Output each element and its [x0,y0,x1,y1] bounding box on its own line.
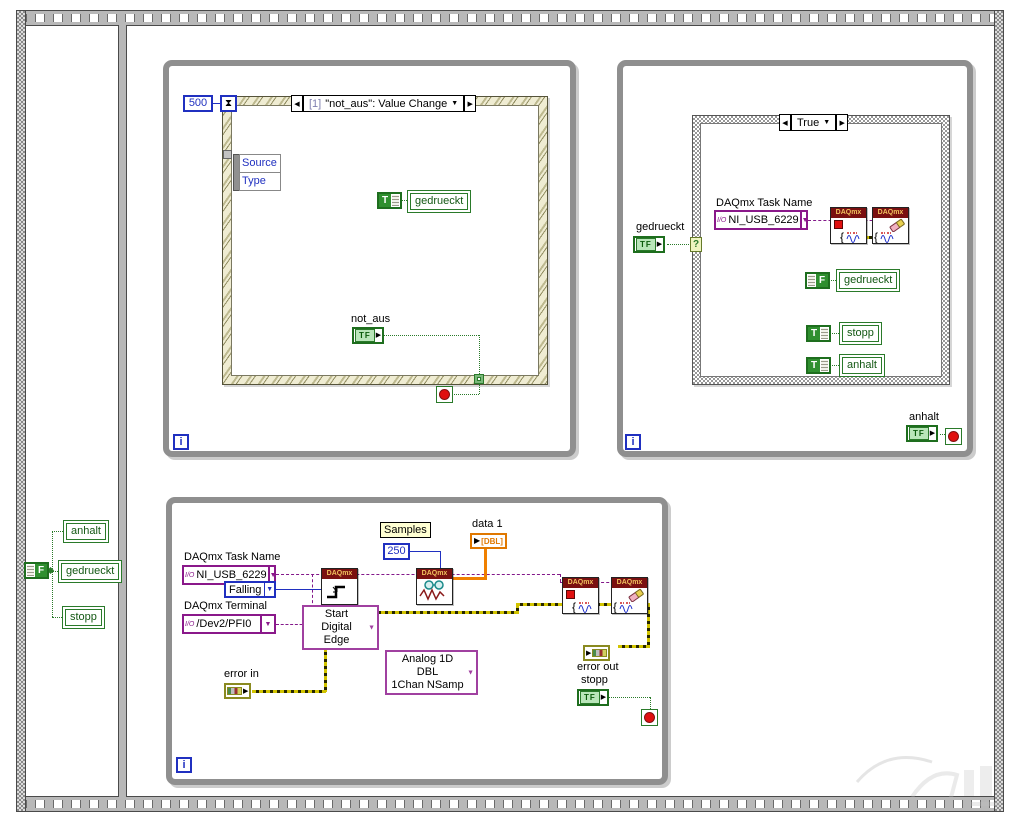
wire-init-stopp [52,617,62,618]
daqmx-read-vi[interactable]: DAQmx [416,568,453,605]
event-case-title: "not_aus": Value Change [325,98,447,110]
sequence-border-top [16,10,1004,26]
wire-notaus-v1 [479,335,480,374]
false-constant-init[interactable]: F [24,562,49,579]
timeout-hourglass-icon[interactable]: ⧗ [220,95,237,112]
daqmx-stop-task-vi-loop3[interactable]: DAQmx { [562,577,599,614]
task-name-constant-loop2[interactable]: I/O NI_USB_6229 ▼ [714,210,808,230]
terminal-arrow-icon: ▶ [243,688,248,695]
true-constant-anhalt[interactable]: T [806,357,831,374]
loop1-stop-terminal[interactable] [436,386,453,403]
io-glyph: I/O [184,572,195,579]
bool-const-value: T [379,194,391,207]
stop-sign-icon [439,389,450,400]
error-out-label: error out [577,661,619,673]
trigger-polymorphic-selector[interactable]: Start Digital Edge ▼ [302,605,379,650]
event-prev-arrow-icon[interactable]: ◀ [291,95,303,112]
event-data-source[interactable]: Source [239,154,281,173]
svg-text:{: { [840,230,844,243]
wire-falling [276,589,322,590]
wire-error3-e [618,645,650,648]
svg-text:{: { [613,600,617,613]
event-tunnel [474,374,484,384]
wire-init [52,531,53,617]
sequence-border-bottom [16,796,1004,812]
local-variable-stopp-loop2[interactable]: stopp [839,322,882,345]
true-constant-stopp[interactable]: T [806,325,831,342]
stopp-terminal[interactable]: TF ▶ [577,689,609,706]
loop2-stop-terminal[interactable] [945,428,962,445]
event-dropdown-icon[interactable]: ▼ [451,100,458,107]
event-case-index: [1] [309,98,321,110]
samples-label: Samples [380,522,431,538]
local-variable-gedrueckt-init[interactable]: gedrueckt [58,560,122,583]
bool-const-glyph [821,328,828,339]
local-variable-stopp-init[interactable]: stopp [62,606,105,629]
case-selector[interactable]: ◀ True ▼ ▶ [779,114,848,131]
wire-data-h [450,577,487,580]
event-node-anchor [223,150,232,159]
read-glasses-icon [417,579,450,602]
dropdown-icon[interactable]: ▼ [467,666,474,679]
dropdown-icon[interactable]: ▼ [800,212,809,228]
task-waveform-icon: { [564,599,599,613]
true-constant-loop1[interactable]: T [377,192,402,209]
terminal-arrow-icon: ▶ [930,430,935,437]
wire-init-anhalt [52,531,63,532]
error-cluster-icon [592,649,607,657]
timeout-constant[interactable]: 500 [183,95,213,112]
sequence-border-right [994,10,1004,812]
case-prev-arrow-icon[interactable]: ◀ [779,114,791,131]
digital-edge-icon [322,579,355,602]
loop1-iteration-terminal[interactable]: i [173,434,189,450]
dropdown-icon[interactable]: ▼ [264,583,274,596]
bool-const-glyph [27,565,34,576]
error-in-terminal[interactable]: ▶ [224,683,251,699]
local-variable-gedrueckt-loop1[interactable]: gedrueckt [407,190,471,213]
sequence-border-left [16,10,26,812]
bool-const-value: F [35,564,47,577]
wire-gedrueckt-selector [667,244,691,245]
terminal-arrow-icon: ▶ [657,241,662,248]
stop-square-icon [566,590,575,599]
wire-notaus-v2 [479,384,480,394]
loop3-iteration-terminal[interactable]: i [176,757,192,773]
indicator-arrow-icon: ▶ [586,650,591,657]
labview-block-diagram: F anhalt gedrueckt stopp 500 ⧗ ◀ [1] "no… [0,0,1012,821]
wire-notaus-h [384,335,479,336]
error-out-indicator[interactable]: ▶ [583,645,610,661]
svg-text:{: { [572,600,576,613]
bool-const-glyph [392,195,399,206]
wire-task3-b [560,574,561,582]
data1-label: data 1 [472,518,503,530]
error-cluster-icon [227,687,242,695]
stop-sign-icon [948,431,959,442]
wire-data-v [484,549,487,580]
daqmx-clear-task-vi-loop3[interactable]: DAQmx { [611,577,648,614]
gedrueckt-terminal[interactable]: TF ▶ [633,236,665,253]
while-loop-daq [166,497,668,785]
io-glyph: I/O [716,217,727,224]
daqmx-stop-task-vi-loop2[interactable]: DAQmx { [830,207,867,244]
local-variable-anhalt-init[interactable]: anhalt [63,520,109,543]
bool-const-value: T [808,359,820,372]
stop-square-icon [834,220,843,229]
task-waveform-icon: { [613,599,648,613]
wire-samples-v [440,551,441,568]
stop-sign-icon [644,712,655,723]
svg-text:{: { [874,230,878,243]
daqmx-terminal-constant[interactable]: I/O /Dev2/PFI0 ▼ [182,614,276,634]
loop3-stop-terminal[interactable] [641,709,658,726]
bool-const-glyph [808,275,815,286]
anhalt-label: anhalt [909,411,939,423]
case-dropdown-icon[interactable]: ▼ [823,119,830,126]
bool-const-value: T [808,327,820,340]
event-next-arrow-icon[interactable]: ▶ [464,95,476,112]
local-variable-gedrueckt-loop2[interactable]: gedrueckt [836,269,900,292]
false-constant-loop2[interactable]: F [805,272,830,289]
case-selector-tunnel: ? [690,237,702,252]
local-variable-anhalt-loop2[interactable]: anhalt [839,354,885,377]
not-aus-terminal[interactable]: TF ▶ [352,327,384,344]
wire-notaus-stop [452,394,479,395]
io-glyph: I/O [184,621,195,628]
dropdown-icon[interactable]: ▼ [368,621,375,634]
dropdown-icon[interactable]: ▼ [260,616,274,632]
read-polymorphic-selector[interactable]: Analog 1D DBL 1Chan NSamp ▼ [385,650,478,695]
daqmx-terminal-label: DAQmx Terminal [184,600,267,612]
samples-constant[interactable]: 250 [383,543,410,560]
task-name-label-loop2: DAQmx Task Name [716,197,812,209]
terminal-arrow-icon: ▶ [601,694,606,701]
bool-const-glyph [821,360,828,371]
sequence-frame-divider [118,25,127,797]
wire-errorin-h [252,690,326,693]
indicator-arrow-icon: ▶ [474,537,480,545]
data1-array-indicator[interactable]: ▶ [DBL] [470,533,507,549]
case-next-arrow-icon[interactable]: ▶ [836,114,848,131]
event-data-type[interactable]: Type [239,172,281,191]
gedrueckt-label: gedrueckt [636,221,684,233]
daqmx-clear-task-vi-loop2[interactable]: DAQmx { [872,207,909,244]
case-title: True [797,117,819,129]
loop2-iteration-terminal[interactable]: i [625,434,641,450]
edge-enum-constant[interactable]: Falling ▼ [224,581,276,598]
not-aus-label: not_aus [351,313,390,325]
anhalt-terminal[interactable]: TF ▶ [906,425,938,442]
event-case-selector[interactable]: ◀ [1] "not_aus": Value Change ▼ ▶ [291,95,476,112]
error-in-label: error in [224,668,259,680]
bool-const-value: F [816,274,828,287]
task-waveform-icon: { [832,229,867,243]
wire-samples-h [409,551,440,552]
task-name-label-loop3: DAQmx Task Name [184,551,280,563]
stopp-label: stopp [581,674,608,686]
task-waveform-icon: { [874,229,909,243]
wire-stopp-stop-h [609,697,650,698]
daqmx-start-trigger-vi[interactable]: DAQmx [321,568,358,605]
terminal-arrow-icon: ▶ [376,332,381,339]
